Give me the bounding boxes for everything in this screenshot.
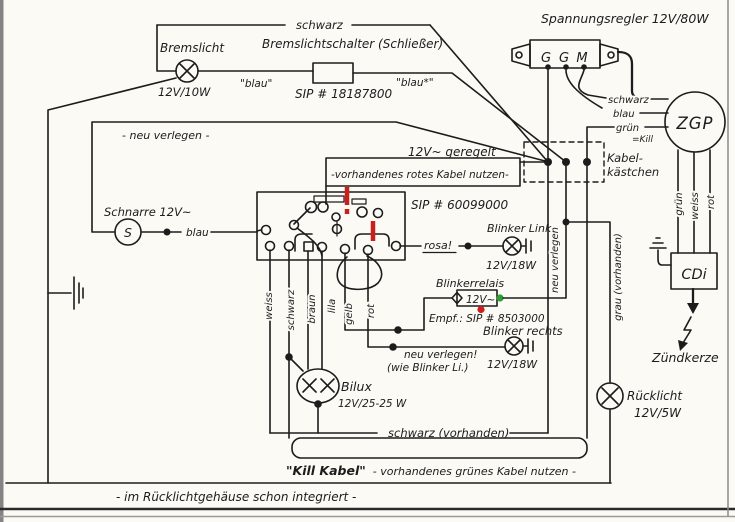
wire-gruen-vert-label: grün [674, 192, 685, 215]
regulator-terminal-g2: G [559, 51, 569, 66]
voltage-regulator: Spannungsregler 12V/80W G G M schwarz bl… [512, 11, 709, 159]
wire-blau-right-label: "blau*" [396, 77, 434, 89]
socket-icon [523, 339, 533, 353]
bilux-lamp-icon [297, 369, 339, 403]
zgp-label: ZGP [675, 114, 713, 133]
socket-icon [521, 239, 531, 253]
regulated-feed: 12V~ geregelt -vorhandenes rotes Kabel n… [326, 145, 544, 204]
terminal-dot [545, 64, 551, 70]
wire-lila-label: lila [327, 299, 338, 313]
light-switch: SIP # 60099000 [257, 187, 509, 289]
brake-lamp-watt: 12V/10W [158, 85, 211, 99]
junction-dot [465, 243, 472, 250]
arrow-down-icon [687, 303, 699, 314]
lightning-icon [683, 317, 691, 343]
wire-weiss-label: weiss [264, 292, 275, 320]
junction-dot [583, 158, 591, 166]
regulator-title: Spannungsregler 12V/80W [541, 11, 709, 26]
wire-horn-blau-label: blau [186, 227, 209, 239]
brake-switch-label: Bremslichtschalter (Schließer) [262, 37, 443, 51]
zgp-generator: ZGP grün weiss rot [665, 92, 725, 253]
junction-dot [544, 158, 552, 166]
terminal-dot [581, 64, 587, 70]
switch-contact [357, 207, 367, 217]
switch-contact [266, 242, 275, 251]
wire-rot-label: rot [366, 303, 377, 318]
wire-regulator-tab [618, 52, 645, 99]
switch-contact [374, 209, 383, 218]
kill-wire-loop [292, 438, 587, 458]
kabelkaestchen-label1: Kabel- [607, 151, 643, 165]
scan-edge-left [0, 0, 4, 522]
kill-kabel-label: "Kill Kabel"- vorhandenes grünes Kabel n… [286, 463, 576, 478]
bilux-label: Bilux [341, 379, 372, 394]
neu-verlegen-vert-label: neu verlegen [550, 227, 561, 293]
junction-dot [164, 229, 171, 236]
switch-contact [262, 226, 271, 235]
junction-dot [562, 158, 570, 166]
rotes-kabel-label: -vorhandenes rotes Kabel nutzen- [331, 169, 509, 181]
kabelkaestchen-label2: kästchen [607, 165, 659, 179]
switch-contact [364, 246, 373, 255]
spark-plug-label: Zündkerze [651, 350, 719, 365]
tail-lamp-watt: 12V/5W [634, 406, 682, 420]
switch-contact [285, 242, 294, 251]
tail-ground-note: - im Rücklichtgehäuse schon integriert - [116, 490, 356, 504]
connector-loop [337, 256, 381, 289]
neu-verlegen-label: - neu verlegen - [122, 129, 210, 142]
brake-lamp-label: Bremslicht [160, 41, 225, 55]
brake-switch-part: SIP # 18187800 [295, 87, 393, 101]
bilux-x-icons [303, 379, 334, 392]
wire-blau-label: blau [613, 109, 635, 120]
cdi-ground-stub [658, 250, 671, 265]
blinker-right: Blinker rechts neu verlegen! (wie Blinke… [387, 324, 563, 374]
regulator-hole-left [516, 52, 522, 58]
blinker-left-watt: 12V/18W [486, 259, 537, 272]
horn-circuit: - neu verlegen - S Schnarre 12V~ blau [92, 122, 545, 245]
regulator-tab-right [600, 44, 618, 66]
wie-blinker-label: (wie Blinker Li.) [387, 362, 469, 374]
brake-switch-box [313, 63, 353, 83]
wire-braun-label: braun [307, 294, 318, 323]
brake-lamp-x-icon [180, 64, 194, 78]
wire-gruen-label: grün [616, 123, 639, 134]
blinker-left-label: Blinker Links [487, 222, 557, 235]
cdi-unit: CDi Zündkerze [650, 238, 719, 365]
wire-gelb-label: gelb [344, 303, 355, 325]
junction-dot [389, 343, 397, 351]
contact-strip [352, 199, 366, 204]
blinker-right-label: Blinker rechts [483, 324, 563, 338]
switch-lever [294, 208, 310, 224]
cdi-label: CDi [681, 267, 706, 283]
bilux-watt: 12V/25-25 W [338, 398, 407, 410]
switch-contact [341, 245, 350, 254]
wire-rot-vert-label: rot [706, 194, 717, 209]
grau-vorhanden-label: grau (vorhanden) [613, 233, 624, 321]
kill-kabel-quote: "Kill Kabel" [286, 463, 366, 478]
ground-icon [74, 277, 83, 309]
relay-voltage: 12V~ [466, 294, 495, 306]
wire-rosa-label: rosa! [424, 239, 452, 252]
bilux-headlamp: Bilux 12V/25-25 W [297, 369, 407, 433]
horn-symbol: S [124, 225, 132, 240]
blinker-right-watt: 12V/18W [487, 358, 538, 371]
wire-schwarz-label: schwarz [286, 289, 297, 330]
contact-strip [314, 196, 344, 202]
regulator-tab-left [512, 44, 530, 66]
kabelkaestchen: Kabel- kästchen [524, 142, 659, 182]
tail-lamp-label: Rücklicht [627, 389, 683, 403]
wiring-diagram: schwarz Bremslicht 12V/10W "blau" Bremsl… [0, 0, 735, 522]
blinker-left: rosa! Blinker Links 12V/18W [400, 222, 557, 272]
scan-page: schwarz Bremslicht 12V/10W "blau" Bremsl… [0, 0, 735, 522]
junction-dot [394, 326, 402, 334]
wire-schwarz-label: schwarz [608, 95, 649, 106]
geregelt-label: 12V~ geregelt [408, 145, 497, 159]
wire-weiss-vert-label: weiss [690, 192, 701, 220]
switch-contact [392, 242, 401, 251]
wire-kill-label: =Kill [632, 135, 653, 145]
blinker-relay: Blinkerrelais 12V~ Empf.: SIP # 8503000 [429, 277, 545, 325]
switch-contact [332, 213, 340, 221]
ground-icon [650, 238, 666, 248]
switch-contact-square [304, 242, 313, 251]
lamp-x-icon [602, 388, 618, 404]
horn-label: Schnarre 12V~ [104, 205, 192, 219]
lamp-x-icon [508, 340, 520, 352]
switch-part-label: SIP # 60099000 [411, 198, 509, 212]
wire-schwarz-branch [289, 357, 303, 371]
contact-stub [257, 230, 261, 231]
terminal-dot [563, 64, 569, 70]
regulator-hole-right [608, 52, 614, 58]
lamp-x-icon [506, 240, 518, 252]
switch-contact [318, 202, 328, 212]
kill-kabel-rest: - vorhandenes grünes Kabel nutzen - [373, 465, 576, 478]
regulator-terminal-m: M [576, 51, 587, 66]
wire-blau-left-label: "blau" [240, 78, 272, 90]
regulator-terminal-g1: G [541, 51, 551, 66]
relay-label: Blinkerrelais [436, 277, 504, 290]
wire-schwarz-top-label: schwarz [296, 18, 344, 32]
neu-verlegen2-label: neu verlegen! [404, 349, 477, 361]
wire-grau-tail [566, 222, 610, 483]
